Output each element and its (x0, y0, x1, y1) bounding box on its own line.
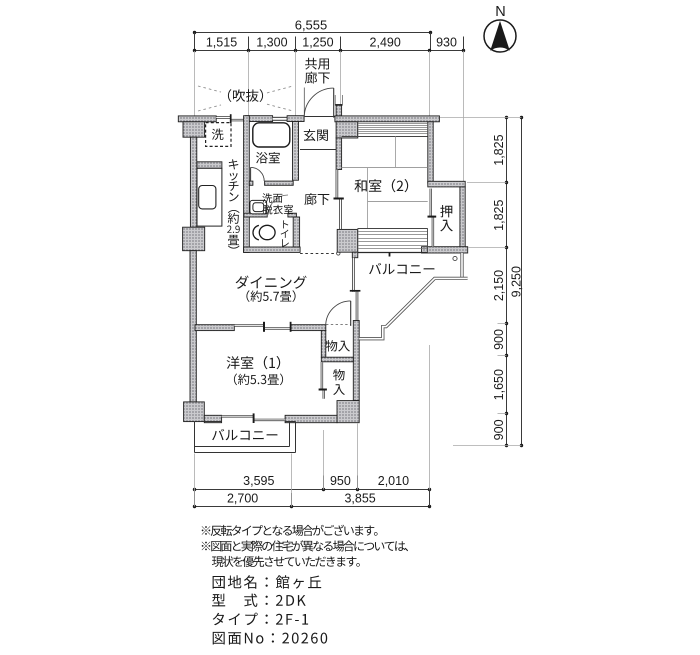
svg-text:3,595: 3,595 (243, 474, 274, 488)
svg-text:9,250: 9,250 (509, 266, 523, 297)
svg-text:6,555: 6,555 (295, 18, 328, 33)
svg-text:1,825: 1,825 (492, 200, 506, 231)
svg-text:900: 900 (492, 419, 506, 440)
svg-text:1,650: 1,650 (492, 369, 506, 400)
svg-text:1,515: 1,515 (206, 36, 237, 50)
svg-text:2,010: 2,010 (378, 474, 409, 488)
svg-text:N: N (495, 4, 505, 20)
svg-text:930: 930 (436, 36, 457, 50)
svg-text:1,825: 1,825 (492, 134, 506, 165)
svg-text:3,855: 3,855 (344, 492, 375, 506)
svg-text:2,700: 2,700 (227, 492, 258, 506)
svg-text:1,300: 1,300 (256, 36, 287, 50)
svg-text:2,490: 2,490 (370, 36, 401, 50)
svg-text:900: 900 (492, 329, 506, 350)
svg-text:2,150: 2,150 (492, 270, 506, 301)
svg-text:1,250: 1,250 (302, 36, 333, 50)
svg-text:950: 950 (330, 474, 351, 488)
